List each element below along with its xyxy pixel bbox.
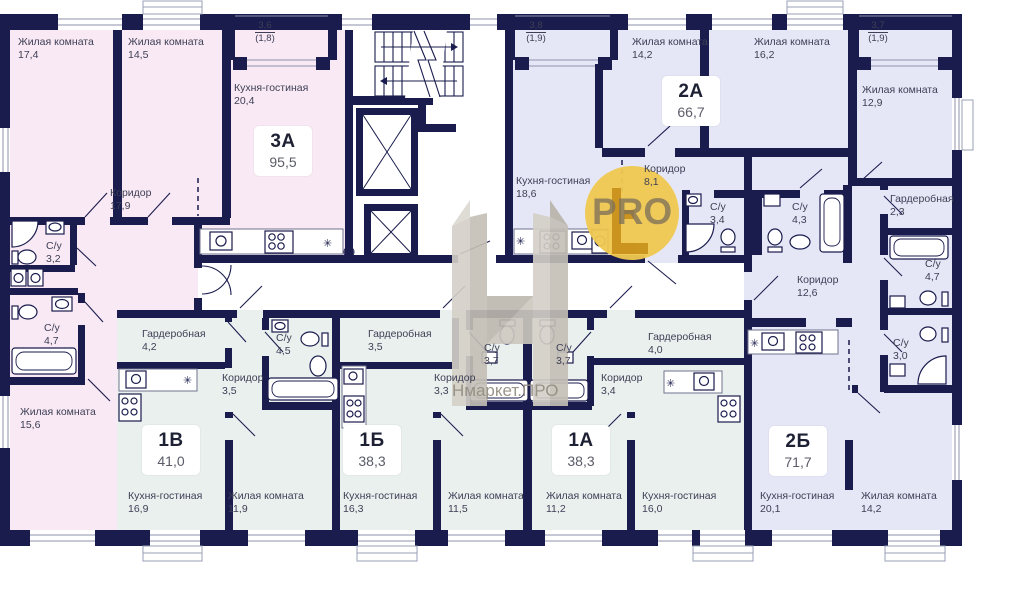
room-label: Жилая комната11,2 [546, 490, 622, 516]
room-label: Коридор8,1 [644, 163, 685, 189]
apartment-badge-2a[interactable]: 2А 66,7 [662, 76, 720, 126]
room-label: Кухня-гостиная20,1 [760, 490, 834, 516]
room-label: С/у3,0 [893, 337, 909, 363]
room-label: Гардеробная2,3 [890, 193, 954, 219]
room-label: Коридор3,5 [222, 372, 263, 398]
room-label: С/у4,7 [925, 258, 941, 284]
room-label: Гардеробная3,5 [368, 328, 432, 354]
room-label: Жилая комната11,9 [228, 490, 304, 516]
svg-text:✳: ✳ [323, 237, 332, 250]
room-label: С/у3,7 [556, 342, 572, 368]
watermark-pro-text: PRO [592, 191, 672, 233]
room-label: Жилая комната14,2 [861, 490, 937, 516]
apartment-badge-1a[interactable]: 1А 38,3 [552, 425, 610, 475]
svg-text:✳: ✳ [183, 374, 192, 387]
room-label: Жилая комната14,5 [128, 36, 204, 62]
room-label: С/у3,7 [484, 342, 500, 368]
watermark-brand-text: Нмаркет.ПРО [452, 381, 558, 401]
room-label: Коридор3,4 [601, 372, 642, 398]
room-label: Кухня-гостиная16,0 [642, 490, 716, 516]
room-label: С/у3,2 [46, 240, 62, 266]
apartment-badge-3a[interactable]: 3А 95,5 [254, 126, 312, 176]
svg-text:✳: ✳ [750, 337, 759, 350]
room-label: Кухня-гостиная20,4 [234, 82, 308, 108]
room-label: Гардеробная4,0 [648, 331, 712, 357]
balcony-label: 3,8 (1,9) [508, 20, 564, 45]
apartment-badge-1v[interactable]: 1В 41,0 [142, 425, 200, 475]
room-label: Жилая комната14,2 [632, 36, 708, 62]
room-label: Жилая комната16,2 [754, 36, 830, 62]
room-label: С/у3,4 [710, 201, 726, 227]
room-label: Жилая комната17,4 [18, 36, 94, 62]
stairs-icon [375, 30, 463, 98]
svg-text:✳: ✳ [516, 235, 525, 248]
apartment-badge-2b[interactable]: 2Б 71,7 [769, 426, 827, 476]
room-label: Жилая комната15,6 [20, 406, 96, 432]
room-label: С/у4,7 [44, 322, 60, 348]
apartment-badge-1b[interactable]: 1Б 38,3 [343, 425, 401, 475]
room-label: Жилая комната11,5 [448, 490, 524, 516]
room-label: С/у4,3 [792, 201, 808, 227]
room-label: Гардеробная4,2 [142, 328, 206, 354]
balcony-label: 3,6 (1,8) [237, 20, 293, 45]
balcony-label: 3,7 (1,9) [850, 20, 906, 45]
room-label: Кухня-гостиная16,9 [128, 490, 202, 516]
room-label: Кухня-гостиная18,6 [516, 175, 590, 201]
room-label: С/у4,5 [276, 332, 292, 358]
room-label: Жилая комната12,9 [862, 84, 938, 110]
elevator-icons [344, 108, 418, 260]
svg-text:✳: ✳ [666, 377, 675, 390]
room-label: Коридор17,9 [110, 187, 151, 213]
floor-plan: ✳ ✳ ✳ ✳ ✳ Жилая комната17,4 Жилая комнат… [0, 0, 1018, 600]
room-label: Коридор12,6 [797, 274, 838, 300]
garbage-chute-icon [344, 247, 354, 257]
room-label: Кухня-гостиная16,3 [343, 490, 417, 516]
